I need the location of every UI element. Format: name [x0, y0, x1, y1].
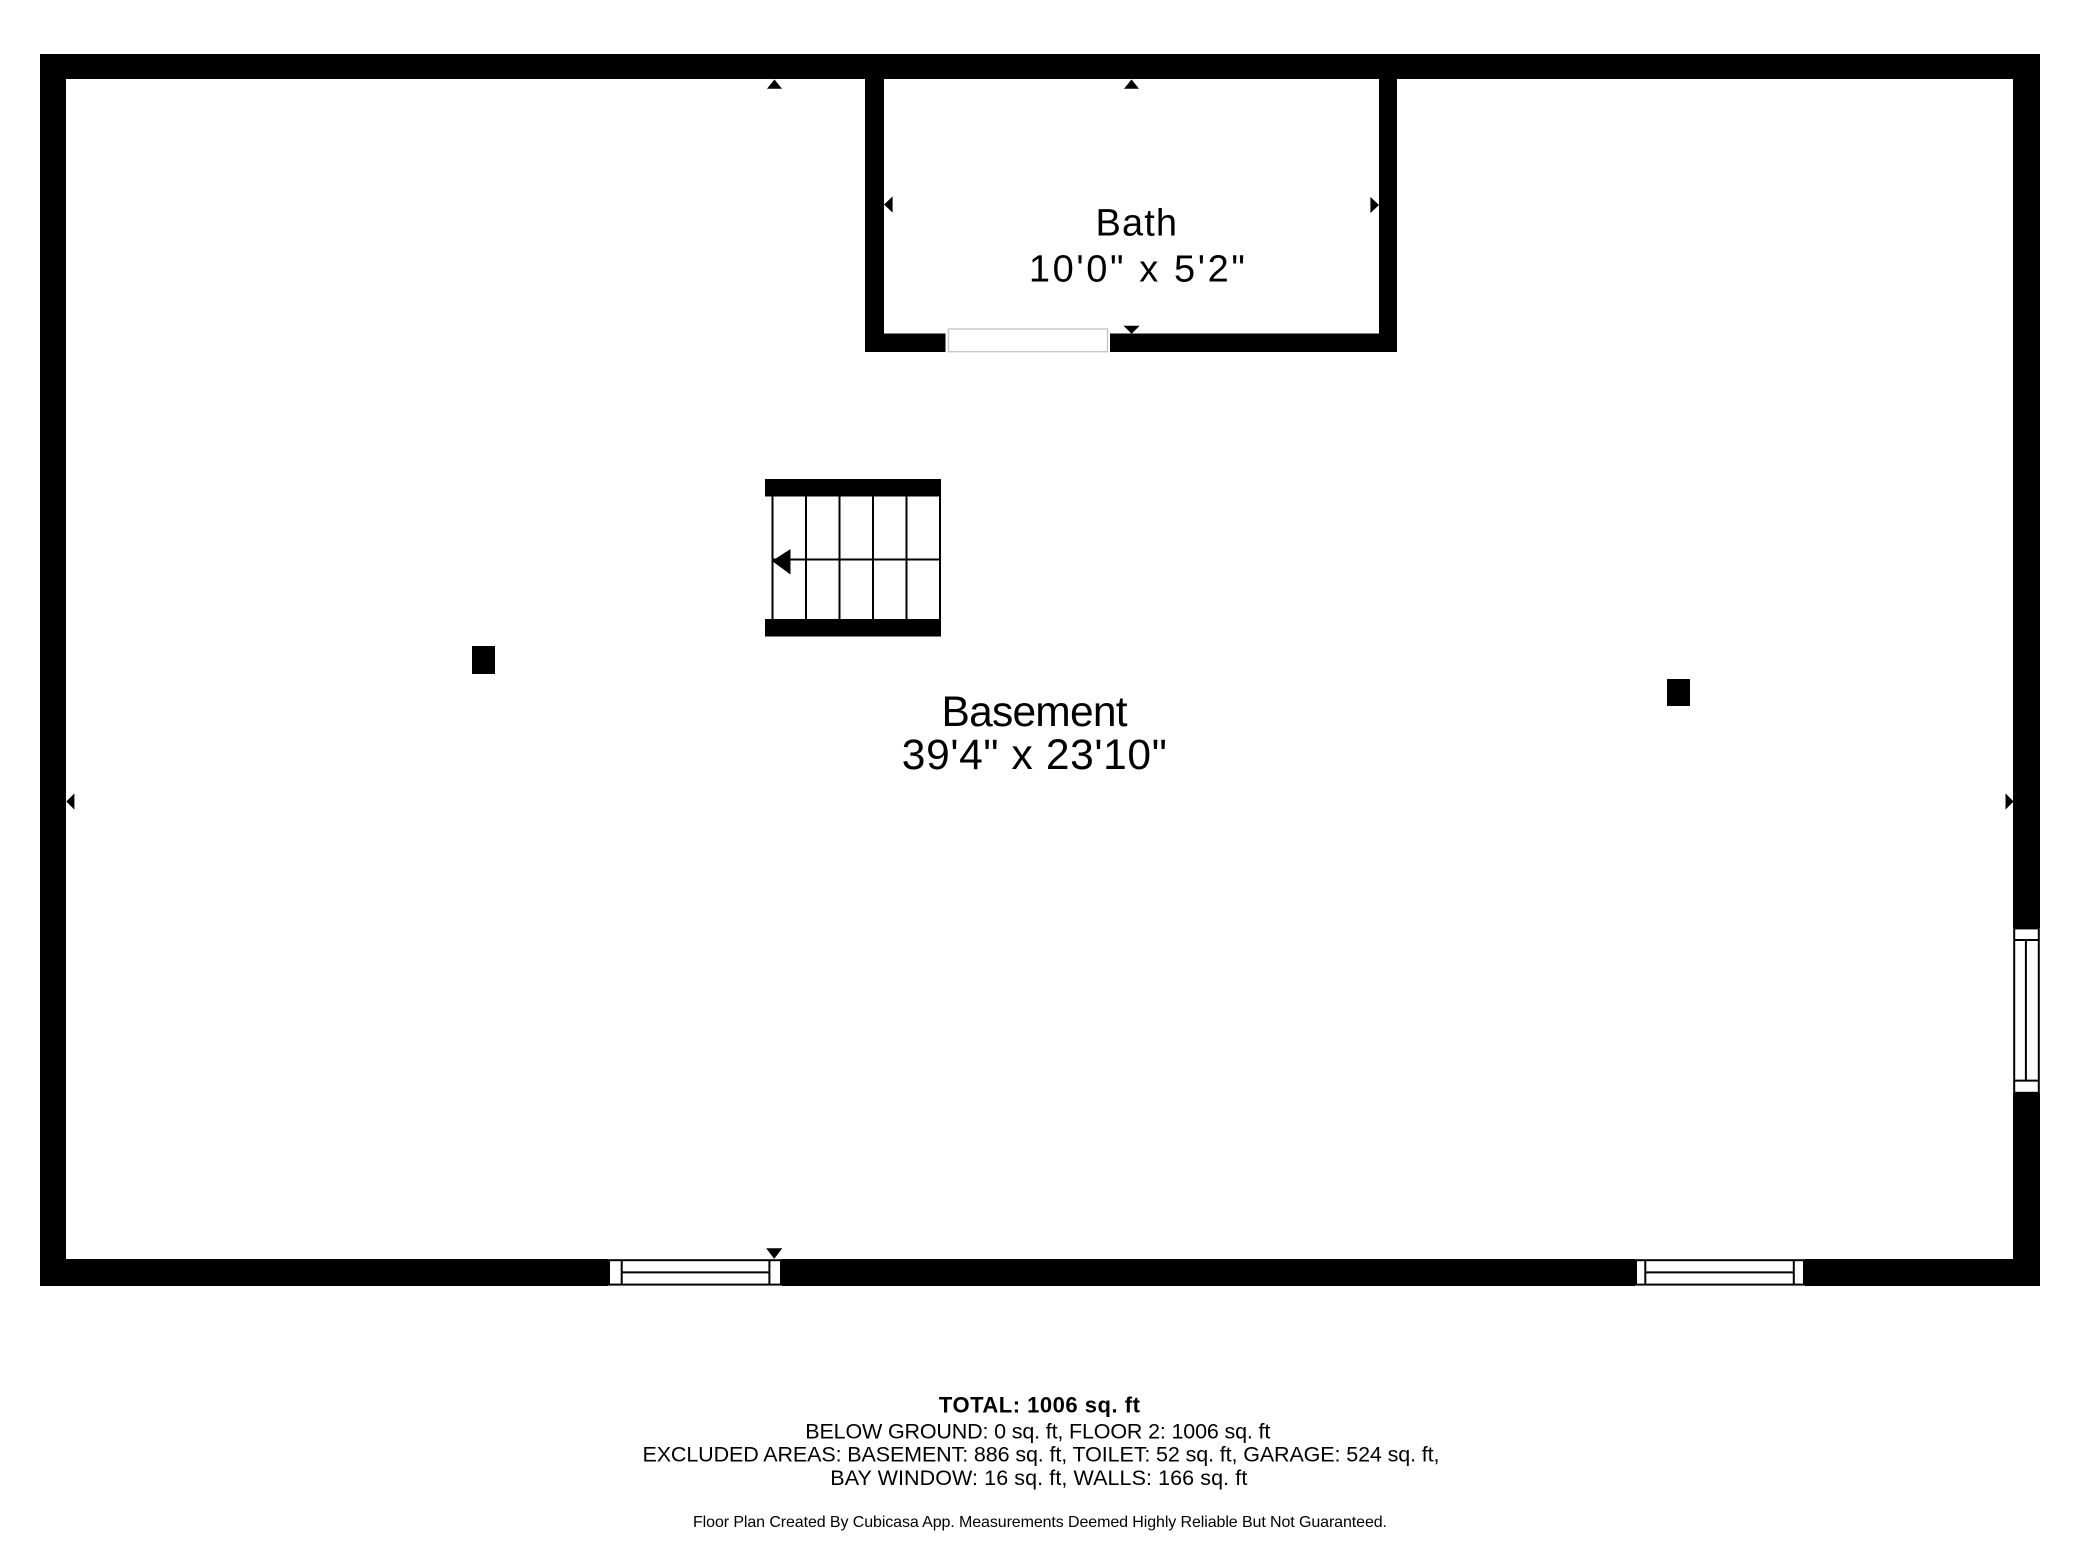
svg-text:Bath: Bath	[1096, 203, 1178, 245]
svg-text:39'4" x 23'10": 39'4" x 23'10"	[902, 732, 1167, 779]
svg-text:Basement: Basement	[942, 689, 1128, 736]
svg-text:BAY WINDOW: 16 sq. ft, WALLS:: BAY WINDOW: 16 sq. ft, WALLS: 166 sq. ft	[830, 1466, 1247, 1490]
svg-text:Floor Plan Created By Cubicasa: Floor Plan Created By Cubicasa App. Meas…	[693, 1514, 1387, 1531]
svg-text:TOTAL: 1006 sq. ft: TOTAL: 1006 sq. ft	[939, 1393, 1141, 1418]
svg-text:BELOW GROUND: 0 sq. ft, FLOOR: BELOW GROUND: 0 sq. ft, FLOOR 2: 1006 sq…	[805, 1419, 1270, 1443]
svg-text:EXCLUDED AREAS: BASEMENT: 886: EXCLUDED AREAS: BASEMENT: 886 sq. ft, TO…	[643, 1443, 1440, 1467]
